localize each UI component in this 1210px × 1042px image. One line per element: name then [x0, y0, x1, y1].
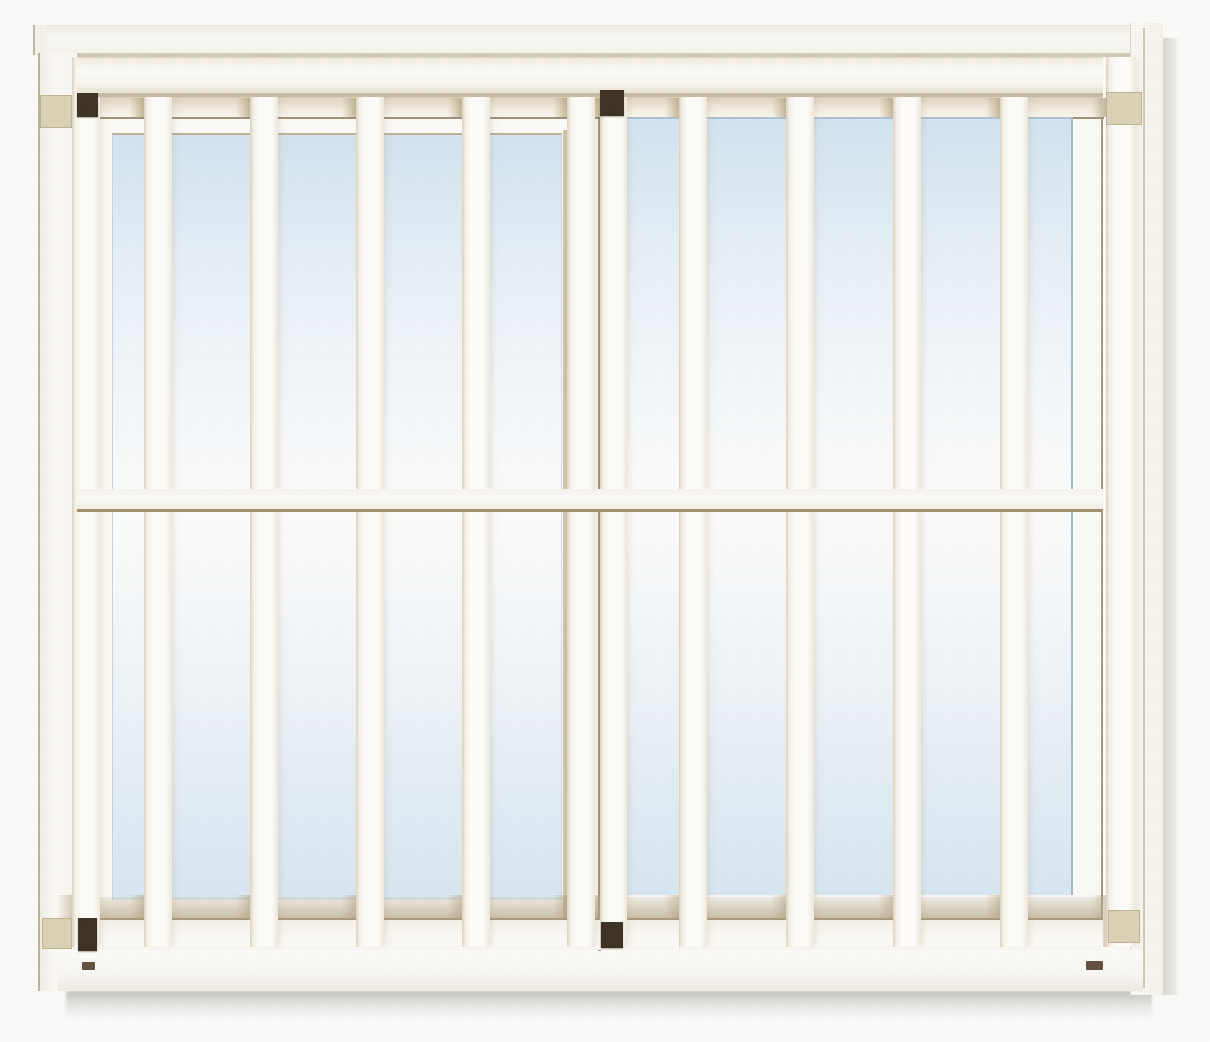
grille-middle-rail — [77, 489, 1103, 512]
bar-shadow-top — [448, 98, 462, 117]
grille-bar — [1106, 57, 1136, 947]
right-frame-inner-edge — [1143, 28, 1145, 988]
bar-shadow-top — [342, 98, 356, 117]
mounting-bracket-bottom-left — [78, 918, 97, 951]
glass-pane-left — [112, 133, 562, 900]
screw-mark — [1086, 961, 1103, 970]
mounting-clip-bottom-right — [1108, 910, 1140, 943]
window-head-rail — [45, 25, 1130, 57]
bar-shadow-top — [1092, 98, 1106, 117]
product-photo-window-grille — [0, 0, 1210, 1042]
grille-top-rail — [77, 57, 1103, 97]
right-frame-outer-shadow — [1163, 38, 1180, 995]
bar-shadow-top — [236, 98, 250, 117]
bar-shadow-top — [553, 98, 567, 117]
bar-shadow-top — [772, 98, 786, 117]
mounting-clip-bottom-left — [42, 918, 72, 949]
bar-shadow-top — [986, 98, 1000, 117]
mounting-bracket-top-center — [600, 90, 624, 116]
right-jamb-edge-line — [1101, 119, 1103, 950]
mounting-bracket-top-left — [77, 93, 98, 117]
ground-shadow — [66, 991, 1152, 1019]
window-head-left-end — [33, 25, 47, 55]
screw-mark — [82, 962, 95, 970]
mounting-clip-top-right — [1106, 92, 1142, 125]
window-sill — [58, 950, 1143, 991]
bar-shadow-top — [879, 98, 893, 117]
mounting-clip-top-left — [40, 95, 72, 128]
bar-shadow-top — [130, 98, 144, 117]
bar-shadow-top — [665, 98, 679, 117]
mounting-bracket-bottom-center — [601, 922, 623, 948]
